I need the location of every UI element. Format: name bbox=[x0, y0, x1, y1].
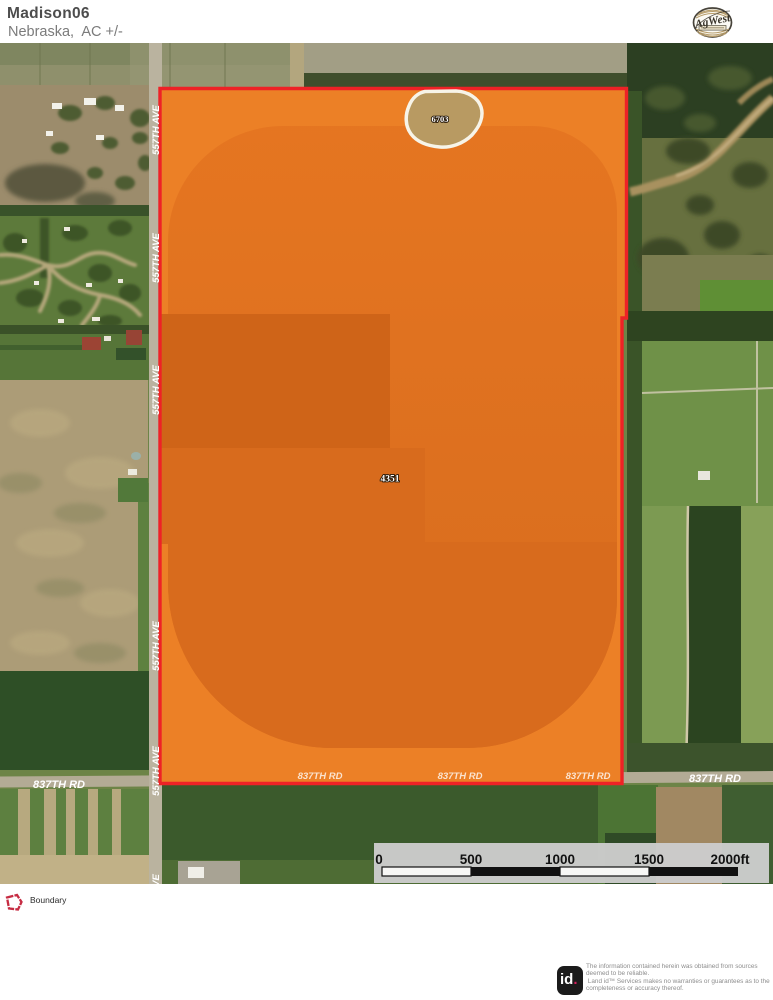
svg-text:837TH RD: 837TH RD bbox=[438, 771, 483, 782]
svg-text:837TH RD: 837TH RD bbox=[298, 771, 343, 782]
svg-text:557TH AVE: 557TH AVE bbox=[151, 105, 162, 155]
svg-text:4351: 4351 bbox=[381, 475, 400, 485]
svg-text:1000: 1000 bbox=[545, 852, 575, 867]
svg-text:557TH AVE: 557TH AVE bbox=[151, 874, 162, 884]
svg-text:837TH RD: 837TH RD bbox=[689, 773, 741, 785]
svg-text:2000ft: 2000ft bbox=[710, 852, 750, 867]
svg-text:557TH AVE: 557TH AVE bbox=[151, 365, 162, 415]
svg-text:837TH RD: 837TH RD bbox=[566, 771, 611, 782]
svg-text:0: 0 bbox=[375, 852, 383, 867]
svg-text:557TH AVE: 557TH AVE bbox=[151, 621, 162, 671]
svg-text:837TH RD: 837TH RD bbox=[33, 779, 85, 791]
svg-text:557TH AVE: 557TH AVE bbox=[151, 233, 162, 283]
svg-text:500: 500 bbox=[460, 852, 483, 867]
svg-text:557TH AVE: 557TH AVE bbox=[151, 746, 162, 796]
svg-text:6703: 6703 bbox=[432, 114, 449, 124]
svg-text:1500: 1500 bbox=[634, 852, 664, 867]
